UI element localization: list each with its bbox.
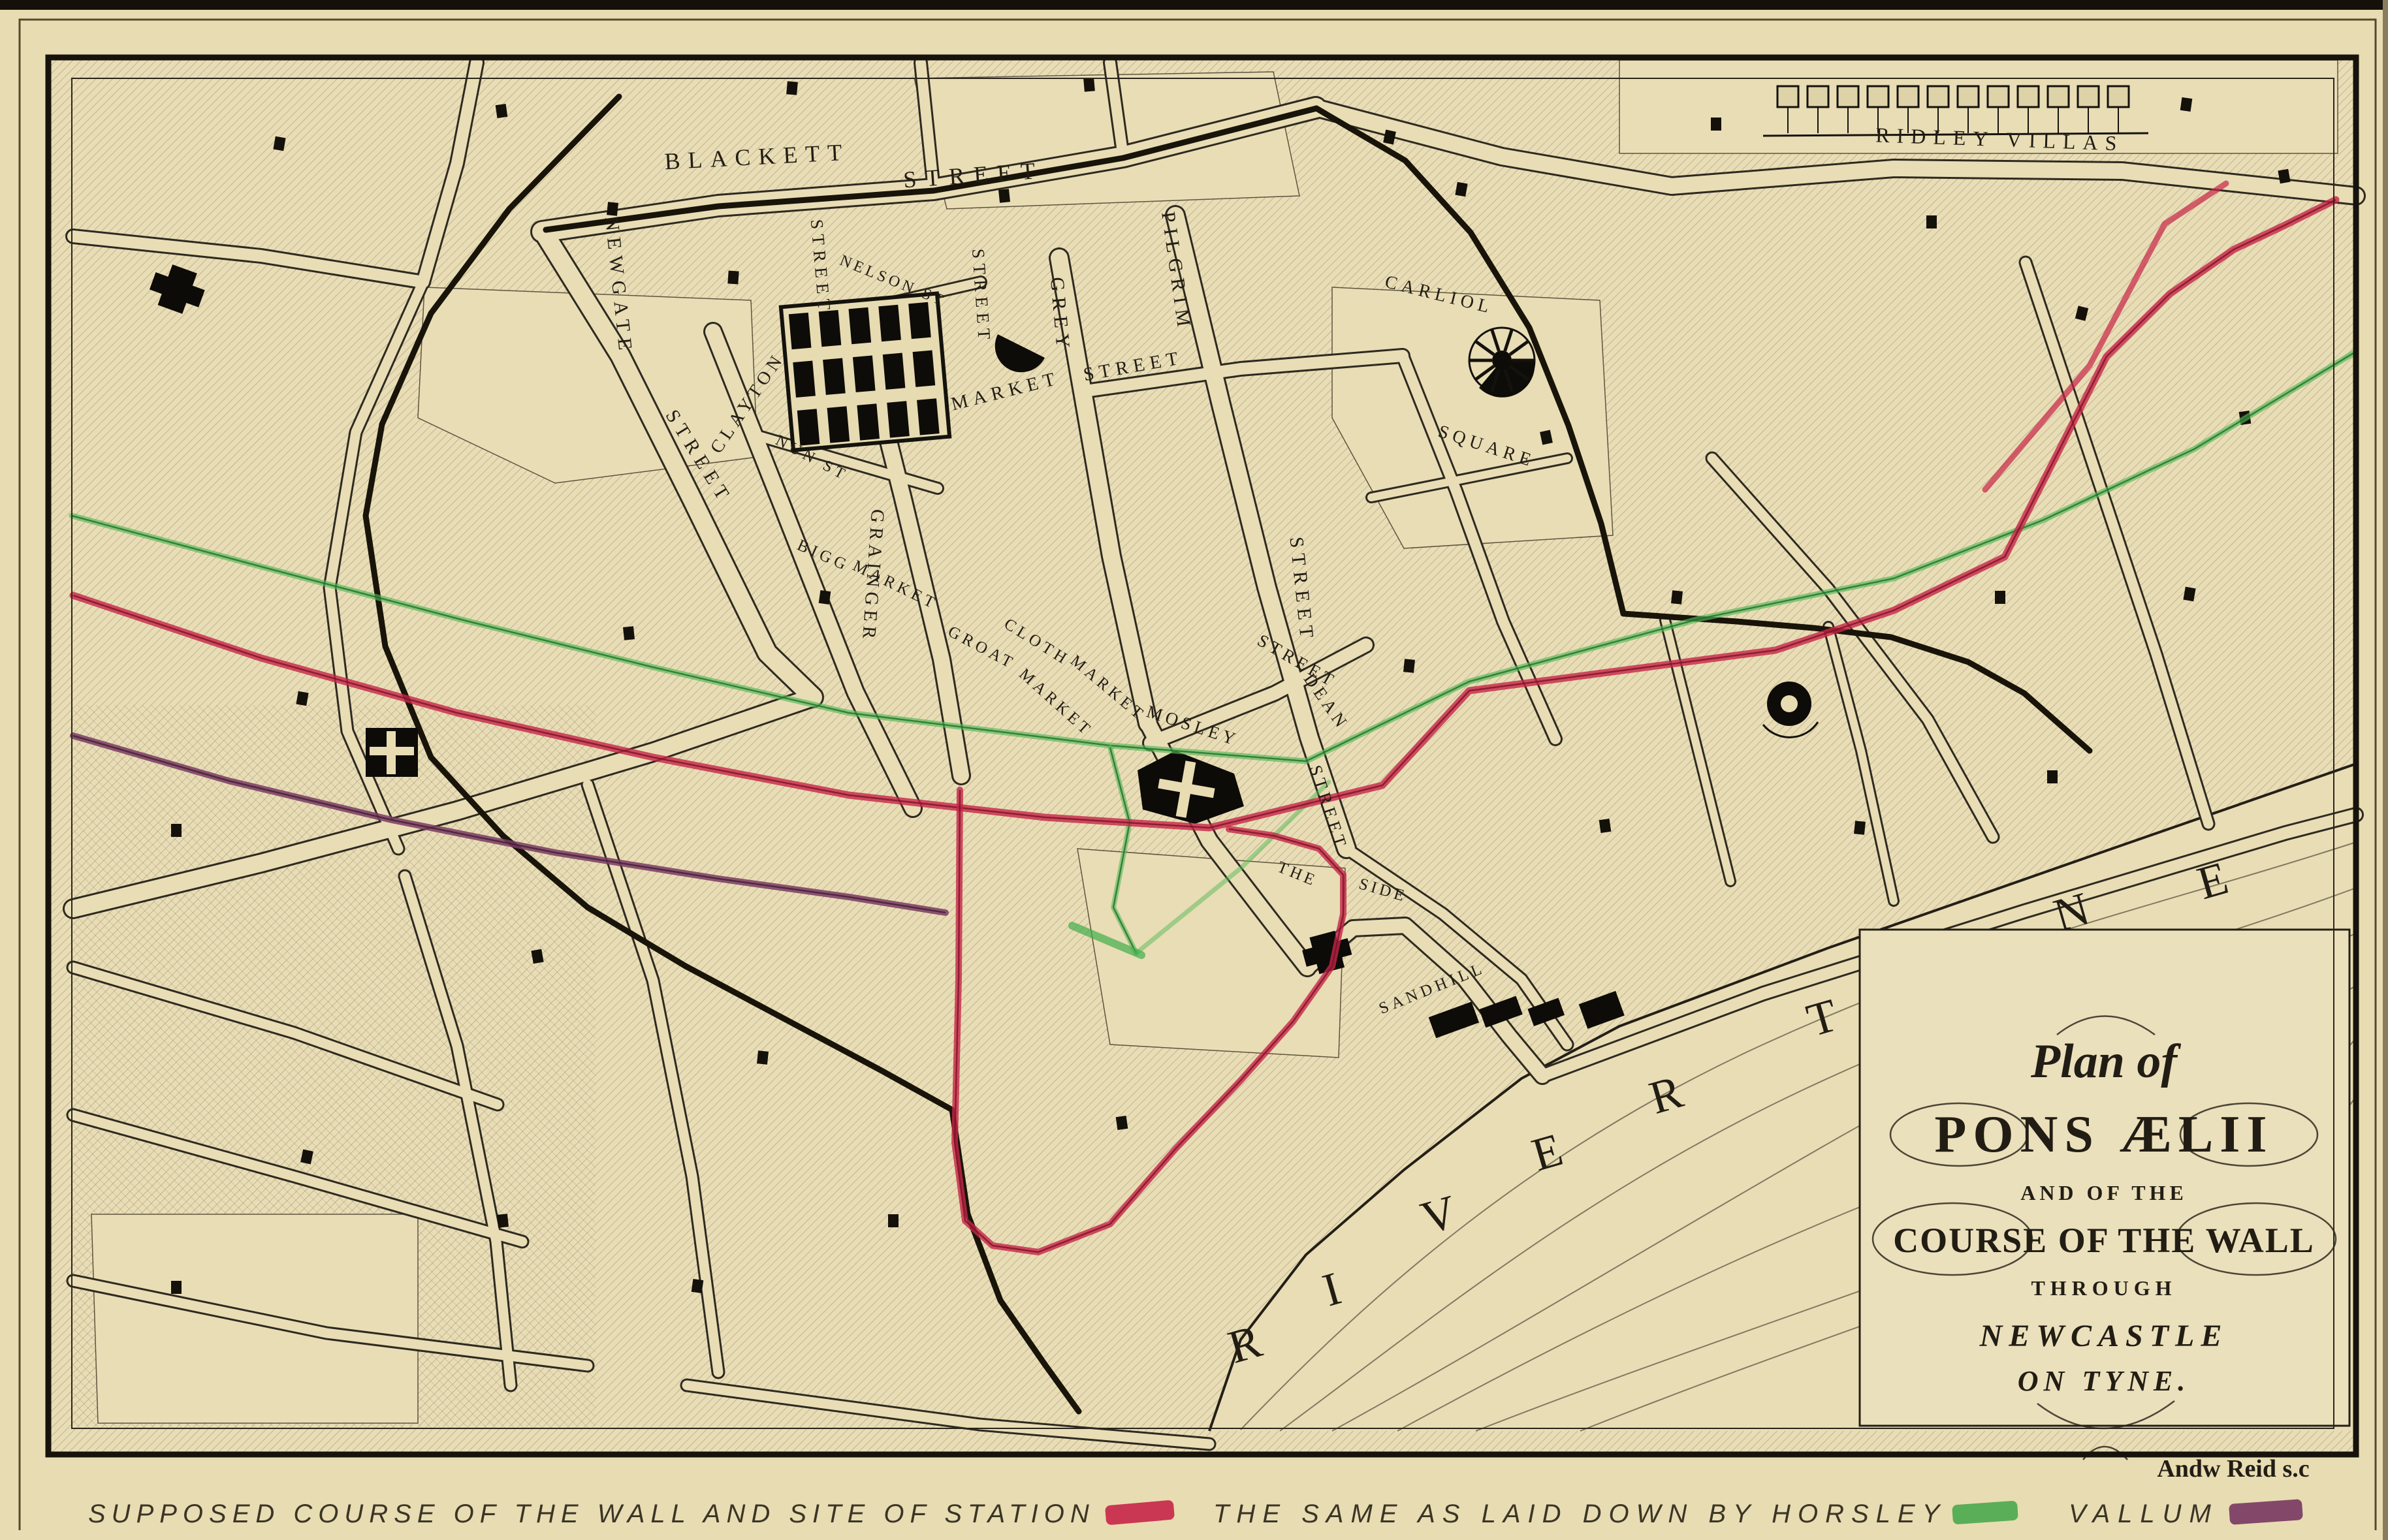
small-building xyxy=(998,189,1010,203)
pons-aelii-map: BLACKETTSTREETNEWGATESTREETCLAYTONNUN ST… xyxy=(0,0,2388,1540)
engraver-credit: Andw Reid s.c xyxy=(2157,1455,2309,1483)
market-cell xyxy=(853,356,876,392)
market-cell xyxy=(913,351,936,387)
small-building xyxy=(819,590,831,605)
market-cell xyxy=(789,313,812,349)
villa-house xyxy=(1807,86,1828,107)
market-cell xyxy=(827,406,850,443)
page-edge-right xyxy=(2383,0,2388,1540)
small-building xyxy=(1926,215,1937,228)
small-building xyxy=(757,1050,769,1065)
market-cell xyxy=(887,401,910,437)
small-building xyxy=(1403,659,1415,673)
small-building xyxy=(1995,591,2005,604)
small-building xyxy=(607,202,618,216)
market-cell xyxy=(917,398,940,435)
market-cell xyxy=(883,353,906,390)
small-building xyxy=(2180,97,2193,112)
small-building xyxy=(727,270,739,284)
cartouche-line-and-of-the: AND OF THE xyxy=(2020,1181,2188,1204)
cartouche-line-course-of-the-wall: COURSE OF THE WALL xyxy=(1893,1221,2315,1260)
small-building xyxy=(786,81,798,95)
villa-house xyxy=(1777,86,1798,107)
villa-house xyxy=(1958,86,1979,107)
small-building xyxy=(888,1214,899,1227)
market-cell xyxy=(793,361,816,398)
market-cell xyxy=(908,302,931,339)
market-cell xyxy=(797,409,820,445)
legend-item-horsley: THE SAME AS LAID DOWN BY HORSLEY xyxy=(1213,1500,1947,1528)
villa-house xyxy=(1838,86,1858,107)
small-building xyxy=(171,1281,182,1294)
small-building xyxy=(1455,182,1467,196)
cartouche-line-pons-aelii: PONS ÆLII xyxy=(1935,1106,2274,1163)
villa-house xyxy=(1928,86,1949,107)
villa-house xyxy=(2108,86,2129,107)
cartouche-line-on-tyne: ON TYNE. xyxy=(2018,1365,2190,1397)
small-building xyxy=(1711,118,1721,131)
cartouche-line-newcastle: NEWCASTLE xyxy=(1979,1319,2229,1353)
small-building xyxy=(171,824,182,837)
cartouche-line-plan-of: Plan of xyxy=(2030,1035,2181,1088)
villa-house xyxy=(1898,86,1918,107)
small-building xyxy=(1854,821,1866,835)
small-building xyxy=(2047,770,2058,783)
small-building xyxy=(296,691,308,706)
small-building xyxy=(2278,169,2290,183)
cartouche-line-through: THROUGH xyxy=(2031,1276,2176,1300)
title-cartouche: Plan of PONS ÆLII AND OF THE COURSE OF T… xyxy=(1860,930,2349,1460)
market-cell xyxy=(849,307,872,344)
small-building xyxy=(531,949,543,964)
grainger-market-building xyxy=(781,294,949,450)
small-building xyxy=(1599,819,1612,833)
small-building xyxy=(1083,78,1095,91)
villa-house xyxy=(2018,86,2039,107)
villa-house xyxy=(2048,86,2069,107)
map-page: BLACKETTSTREETNEWGATESTREETCLAYTONNUN ST… xyxy=(0,0,2388,1540)
villa-house xyxy=(2078,86,2099,107)
villa-house xyxy=(1988,86,2009,107)
market-cell xyxy=(823,358,846,395)
legend-item-supposed-course: SUPPOSED COURSE OF THE WALL AND SITE OF … xyxy=(88,1500,1095,1528)
page-edge-top xyxy=(0,0,2388,10)
legend-item-vallum: VALLUM xyxy=(2069,1500,2219,1528)
small-building xyxy=(1116,1116,1128,1130)
st-johns-church xyxy=(366,728,418,777)
market-cell xyxy=(819,310,842,347)
small-building xyxy=(2183,587,2195,601)
villa-house xyxy=(1868,86,1888,107)
small-building xyxy=(1671,590,1683,605)
market-cell xyxy=(878,305,901,341)
small-building xyxy=(273,136,285,151)
small-building xyxy=(692,1279,704,1293)
small-building xyxy=(497,1214,509,1228)
small-building xyxy=(496,104,508,118)
market-cell xyxy=(857,403,880,440)
small-building xyxy=(623,626,635,640)
